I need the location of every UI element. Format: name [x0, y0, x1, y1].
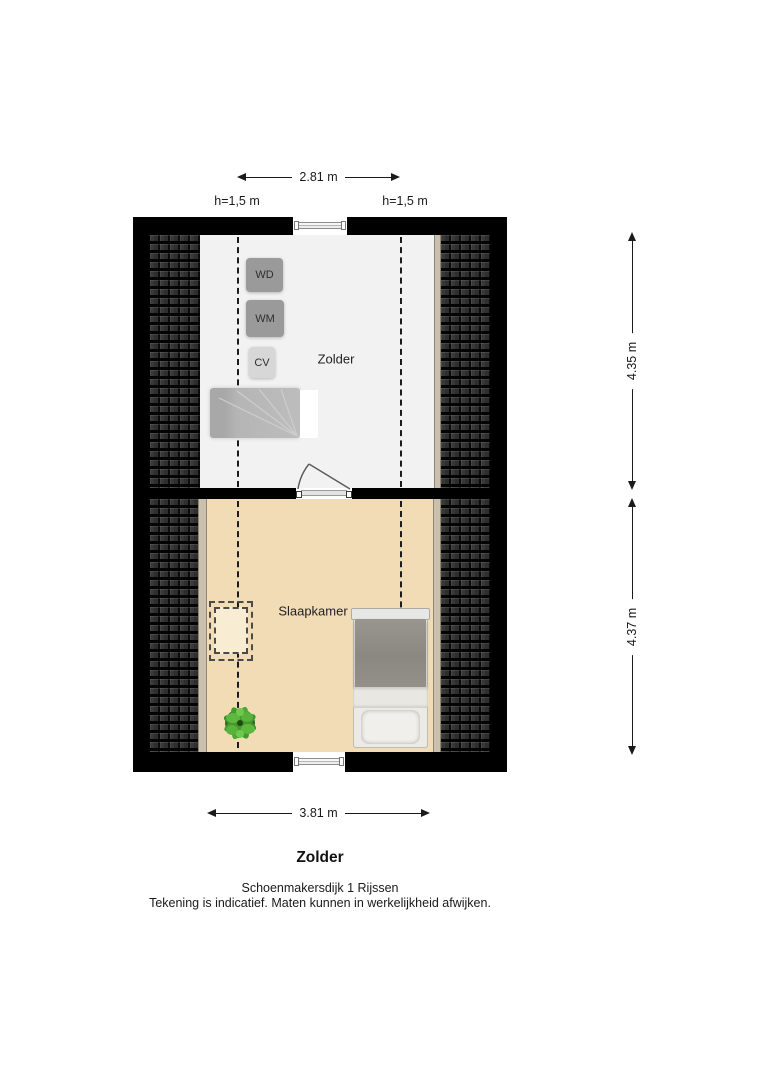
arrow-left-icon: [237, 173, 246, 181]
disclaimer-line: Tekening is indicatief. Maten kunnen in …: [0, 896, 640, 911]
washing-machine-label: WM: [255, 313, 275, 325]
bed-pillow: [361, 710, 420, 744]
roof-tiles-right-bedroom-icon: [441, 499, 490, 752]
knee-wall-dashed-line: [400, 237, 402, 487]
dimension-bedroom-depth-label: 4.37 m: [625, 598, 639, 654]
dimension-attic-width-label: 2.81 m: [292, 170, 344, 184]
arrow-down-icon: [628, 481, 636, 490]
knee-wall-strip-left-bedroom: [198, 499, 207, 752]
bed-icon: [353, 608, 428, 748]
footer: Zolder Schoenmakersdijk 1 Rijssen Tekeni…: [0, 849, 640, 911]
dimension-bedroom-width: 3.81 m: [207, 806, 430, 820]
address-line: Schoenmakersdijk 1 Rijssen: [0, 881, 640, 896]
arrow-down-icon: [628, 746, 636, 755]
dimension-attic-width: 2.81 m: [237, 170, 400, 184]
page-title: Zolder: [0, 849, 640, 867]
arrow-right-icon: [391, 173, 400, 181]
skylight-inner: [214, 607, 248, 654]
window-glazing: [297, 222, 343, 229]
knee-wall-strip-right-bedroom: [433, 499, 441, 752]
knee-wall-dashed-line: [237, 237, 239, 487]
floorplan-page: WD WM CV: [0, 0, 768, 1086]
floor-plan: WD WM CV: [133, 217, 507, 772]
central-heating-box: CV: [249, 347, 275, 378]
window-jamb: [341, 221, 346, 230]
roof-tiles-left-bedroom-icon: [150, 499, 198, 752]
attic-room-label: Zolder: [318, 352, 355, 367]
knee-wall-strip-right-attic: [434, 235, 441, 488]
washer-dryer-box: WD: [246, 258, 283, 292]
arrow-left-icon: [207, 809, 216, 817]
bedroom-room-label: Slaapkamer: [278, 604, 347, 619]
window-jamb: [339, 757, 344, 766]
arrow-up-icon: [628, 498, 636, 507]
bed-duvet: [355, 619, 426, 687]
dimension-bedroom-width-label: 3.81 m: [292, 806, 344, 820]
dimension-attic-depth-label: 4.35 m: [625, 333, 639, 389]
central-heating-label: CV: [254, 357, 269, 369]
knee-wall-height-left-label: h=1,5 m: [214, 194, 260, 208]
knee-wall-height-right-label: h=1,5 m: [382, 194, 428, 208]
window-glazing: [297, 758, 341, 765]
bed-fold: [353, 687, 428, 708]
arrow-up-icon: [628, 232, 636, 241]
door-icon: [296, 488, 352, 499]
staircase-icon: [210, 388, 300, 438]
roof-tiles-right-attic-icon: [441, 235, 490, 488]
window-jamb: [294, 221, 299, 230]
window-top-icon: [293, 217, 347, 235]
dimension-attic-depth: 4.35 m: [625, 232, 639, 490]
arrow-right-icon: [421, 809, 430, 817]
dimension-bedroom-depth: 4.37 m: [625, 498, 639, 755]
plant-icon: [217, 700, 263, 746]
door-sill: [301, 490, 347, 496]
door-jamb: [346, 491, 352, 498]
door-jamb: [296, 491, 302, 498]
window-jamb: [294, 757, 299, 766]
roof-tiles-left-attic-icon: [150, 235, 200, 488]
window-bottom-icon: [293, 752, 345, 772]
washer-dryer-label: WD: [255, 269, 273, 281]
stairwell-opening: [300, 390, 318, 438]
washing-machine-box: WM: [246, 300, 284, 337]
